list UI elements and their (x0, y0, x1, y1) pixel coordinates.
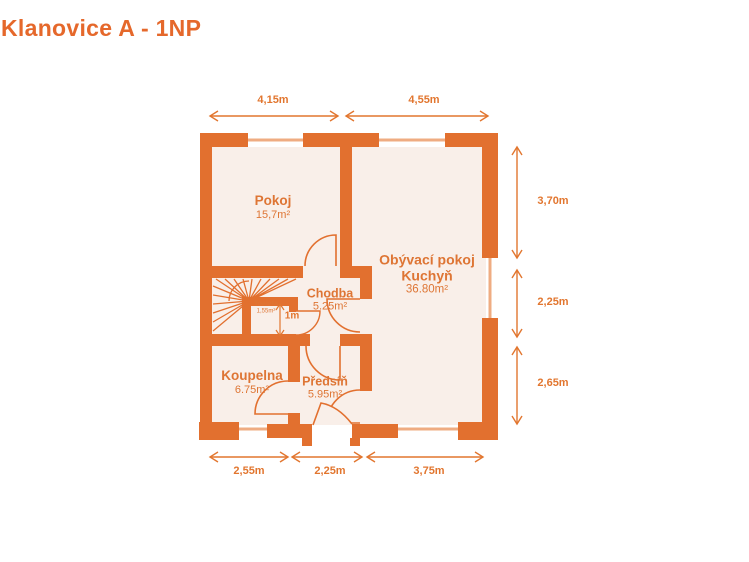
room-label-chodba: Chodba 5.25m² (307, 286, 354, 313)
room-label-pokoj: Pokoj 15,7m² (255, 193, 292, 221)
room-label-toaleta: Toaleta 1,55m² (254, 301, 278, 316)
door-jamb-tab (302, 438, 312, 446)
dimension-arrow-top-left (210, 111, 338, 121)
dimension-label-bottom-3: 3,75m (413, 465, 444, 477)
dimension-arrow-bottom-1 (210, 452, 288, 462)
room-label-obyvaci-pokoj-kuchyn: Obývací pokoj Kuchyň 36.80m² (379, 251, 475, 296)
room-label-koupelna: Koupelna 6.75m² (221, 368, 283, 396)
dimension-label-right-1: 3,70m (537, 195, 568, 207)
dimension-arrow-right-2 (512, 270, 522, 337)
wall-segment (352, 424, 398, 438)
dimension-arrow-right-1 (512, 147, 522, 258)
floor-plan-page: Klanovice A - 1NP (0, 0, 749, 562)
dimension-arrow-top-right (346, 111, 488, 121)
wall-segment (360, 346, 372, 391)
wall-segment (352, 266, 372, 278)
wall-segment (458, 422, 498, 440)
wall-segment (288, 413, 300, 425)
dimension-label-top-left: 4,15m (257, 94, 288, 106)
wall-segment (212, 266, 303, 278)
dimension-label-right-2: 2,25m (537, 296, 568, 308)
wall-segment (267, 424, 312, 438)
room-label-predsin: Předsíň 5.95m² (302, 374, 348, 401)
wall-segment (200, 133, 212, 437)
dimension-arrow-right-3 (512, 347, 522, 424)
wall-segment (340, 334, 372, 346)
dimension-label-bottom-1: 2,55m (233, 465, 264, 477)
dimension-arrow-bottom-2 (292, 452, 362, 462)
dimension-label-right-3: 2,65m (537, 377, 568, 389)
wall-segment (482, 133, 498, 258)
dimension-arrow-bottom-3 (367, 452, 483, 462)
floor-plan-drawing (0, 0, 749, 562)
wall-segment (482, 318, 498, 437)
wall-segment (360, 278, 372, 299)
wall-segment (303, 133, 379, 147)
dimension-label-bottom-2: 2,25m (314, 465, 345, 477)
wall-segment (200, 133, 248, 147)
door-jamb-tab (350, 438, 360, 446)
dimension-label-top-right: 4,55m (408, 94, 439, 106)
wall-segment (340, 147, 352, 278)
wall-segment (199, 422, 239, 440)
dimension-label-toaleta: 1m (285, 311, 299, 322)
wall-segment (288, 346, 300, 382)
